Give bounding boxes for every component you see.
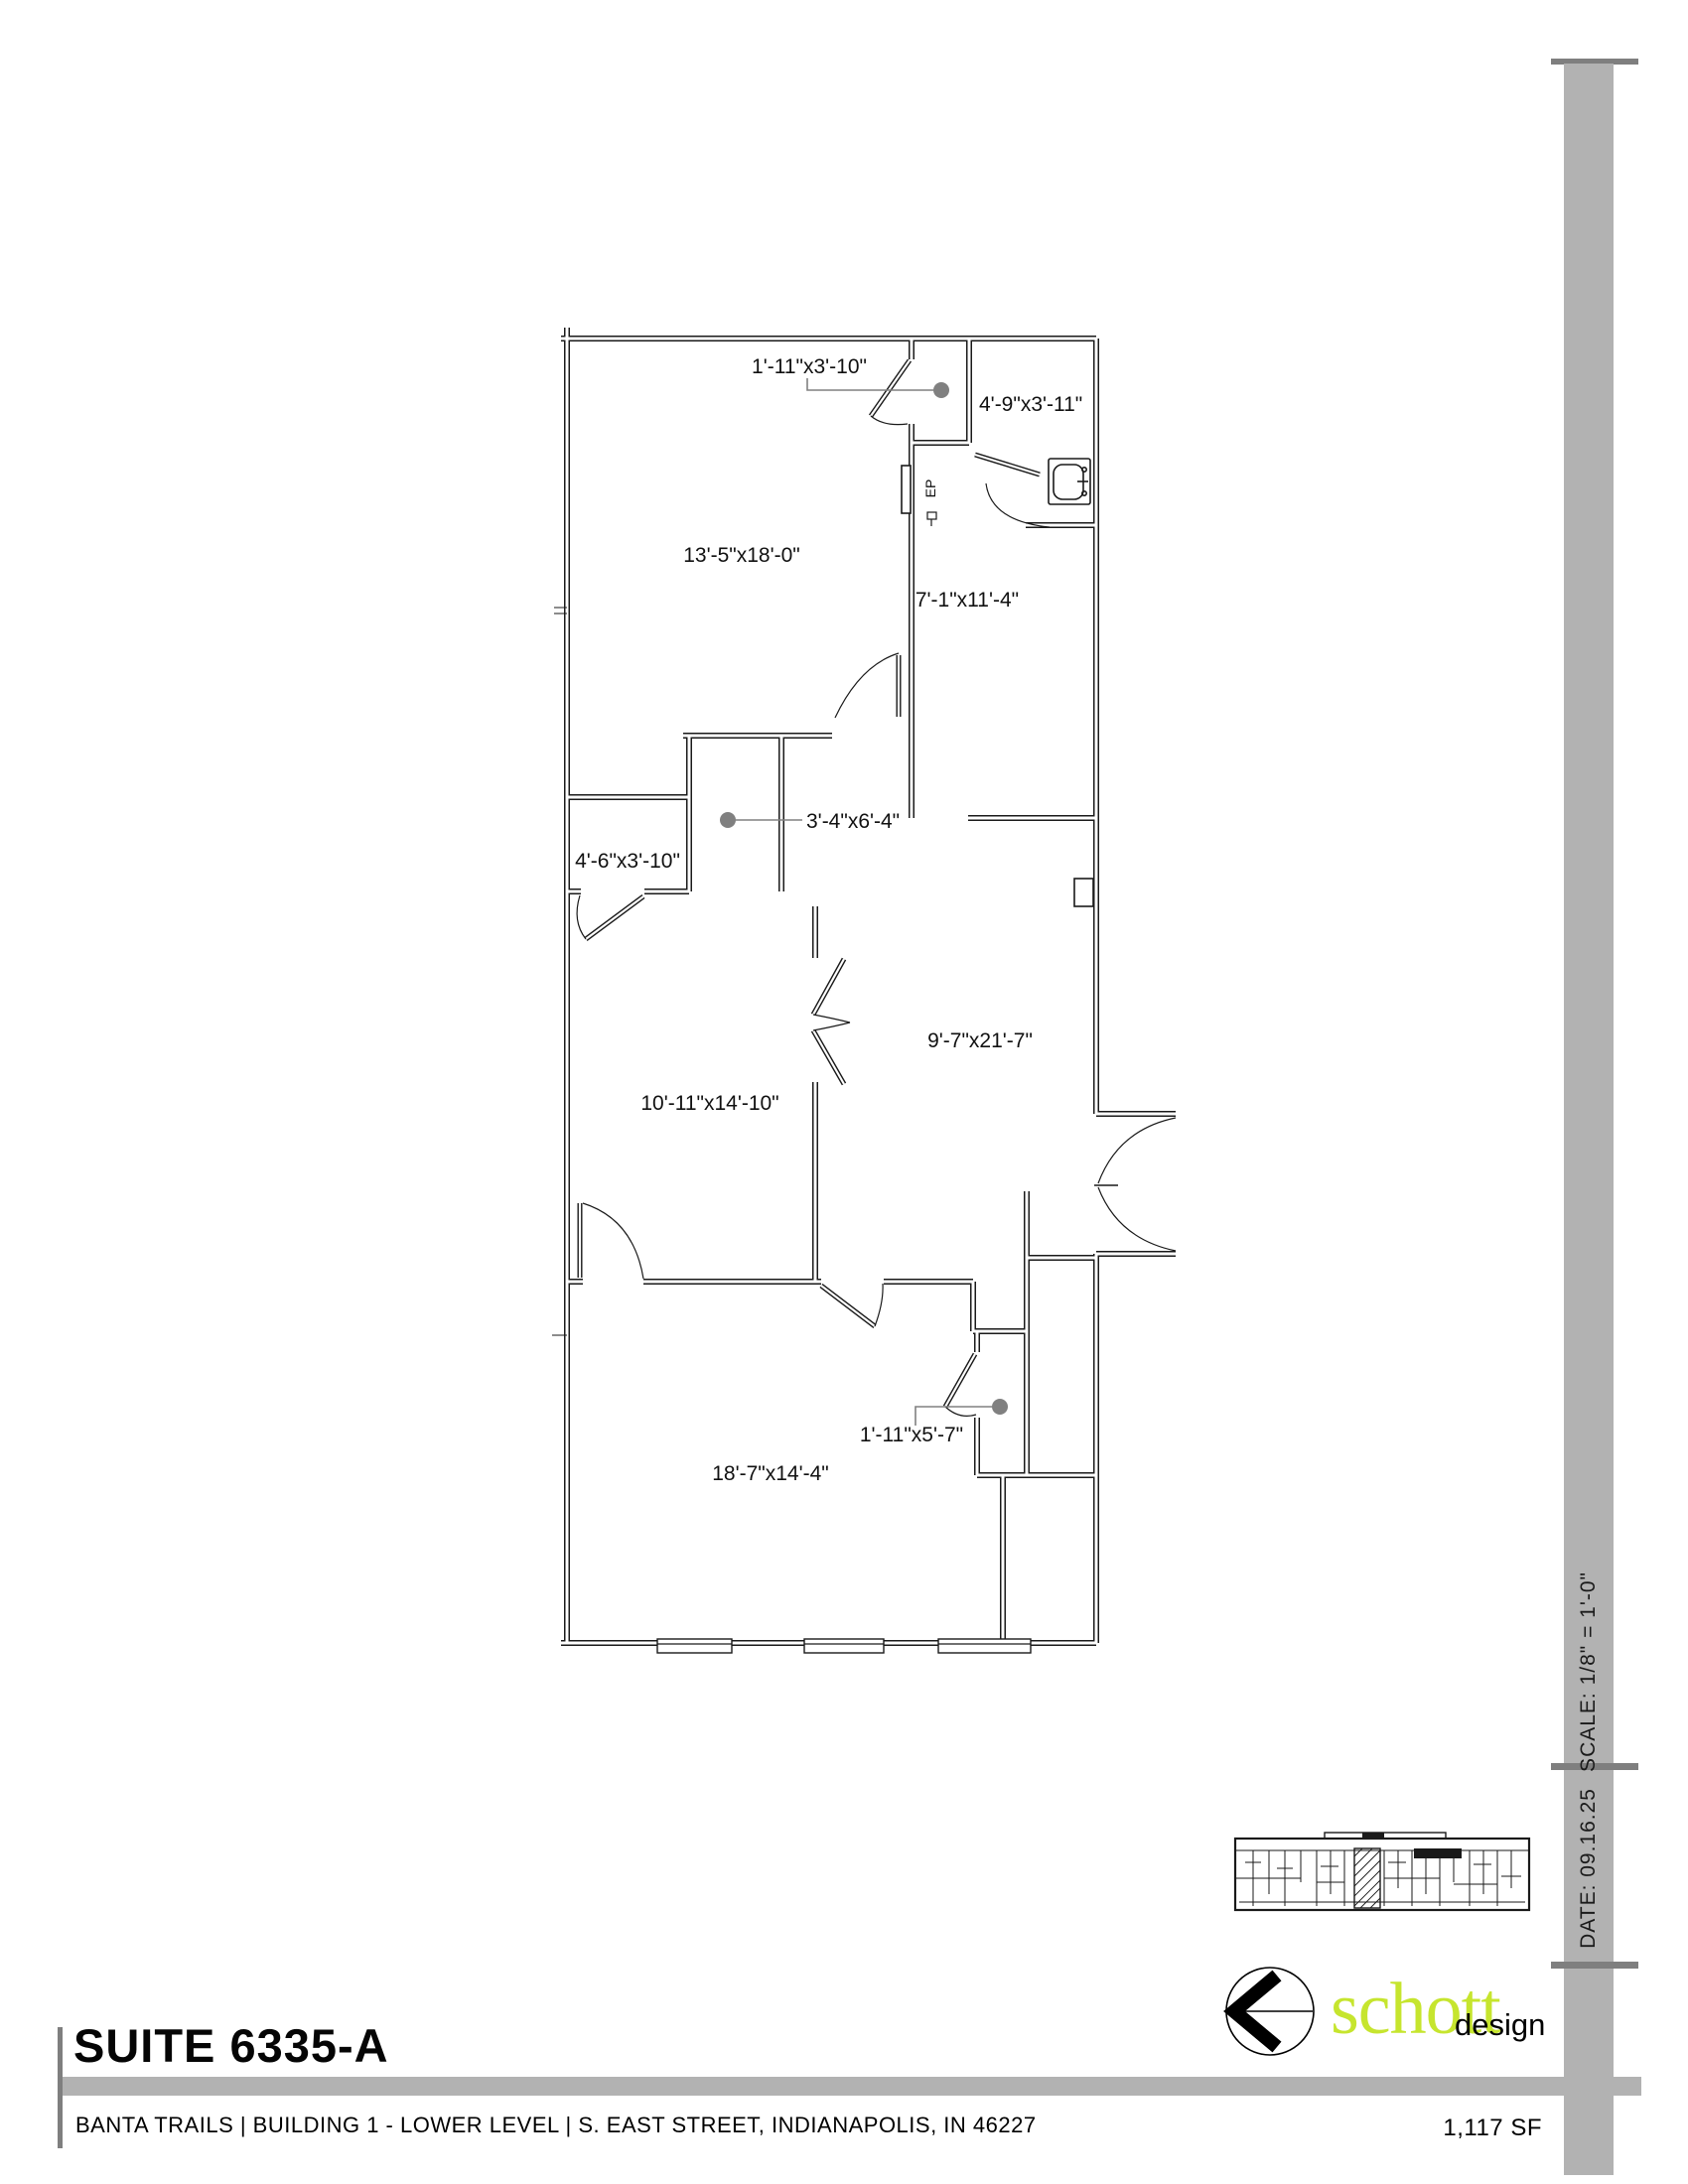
window — [804, 1639, 884, 1653]
room-label: 9'-7"x21'-7" — [927, 1029, 1033, 1052]
room-label: 4'-9"x3'-11" — [979, 393, 1082, 416]
wall-box-icon — [1074, 879, 1093, 906]
door-leaves — [580, 360, 1040, 1407]
room-label: 7'-1"x11'-4" — [915, 589, 1019, 612]
dimension-dots — [720, 382, 1008, 1415]
room-label: 1'-11"x3'-10" — [752, 355, 867, 378]
dimension-dot — [720, 812, 736, 828]
sink-icon — [1049, 459, 1090, 504]
area-label: 1,117 SF — [1443, 2115, 1542, 2142]
floor-plan-sheet: 1'-11"x3'-10" 4'-9"x3'-11" 13'-5"x18'-0"… — [0, 0, 1688, 2184]
room-label: 18'-7"x14'-4" — [712, 1462, 829, 1485]
logo-wordmark-suffix: design — [1455, 2007, 1545, 2043]
room-label: 1'-11"x5'-7" — [860, 1424, 963, 1446]
building-key-plan-thumbnail — [1235, 1833, 1529, 1910]
window-symbols — [657, 1639, 1031, 1653]
scale-label: SCALE: 1/8" = 1'-0" — [1577, 1571, 1601, 1772]
room-label: 3'-4"x6'-4" — [806, 810, 900, 833]
footer-bar — [63, 2077, 1641, 2096]
electrical-panel-label: EP — [922, 479, 938, 498]
dimension-dot — [933, 382, 949, 398]
date-label: DATE: 09.16.25 — [1577, 1788, 1601, 1949]
suite-location-hatch — [1354, 1848, 1380, 1908]
room-label: 10'-11"x14'-10" — [640, 1092, 778, 1115]
room-label: 4'-6"x3'-10" — [575, 850, 680, 873]
date-label-container: DATE: 09.16.25 — [1564, 1793, 1614, 1944]
leader-lines — [736, 378, 992, 1426]
titleblock-divider — [1551, 1962, 1638, 1969]
suite-title: SUITE 6335-A — [73, 2018, 389, 2073]
dimension-dot — [992, 1399, 1008, 1415]
window — [657, 1639, 732, 1653]
room-dimension-labels: 1'-11"x3'-10" 4'-9"x3'-11" 13'-5"x18'-0"… — [575, 355, 1082, 1485]
footer-address: BANTA TRAILS | BUILDING 1 - LOWER LEVEL … — [75, 2113, 1037, 2138]
left-chevron-circle-icon — [1226, 1968, 1314, 2055]
window — [938, 1639, 1031, 1653]
scale-label-container: SCALE: 1/8" = 1'-0" — [1564, 1580, 1614, 1763]
door-swing-arcs — [577, 416, 1176, 1416]
room-label: 13'-5"x18'-0" — [683, 544, 800, 567]
